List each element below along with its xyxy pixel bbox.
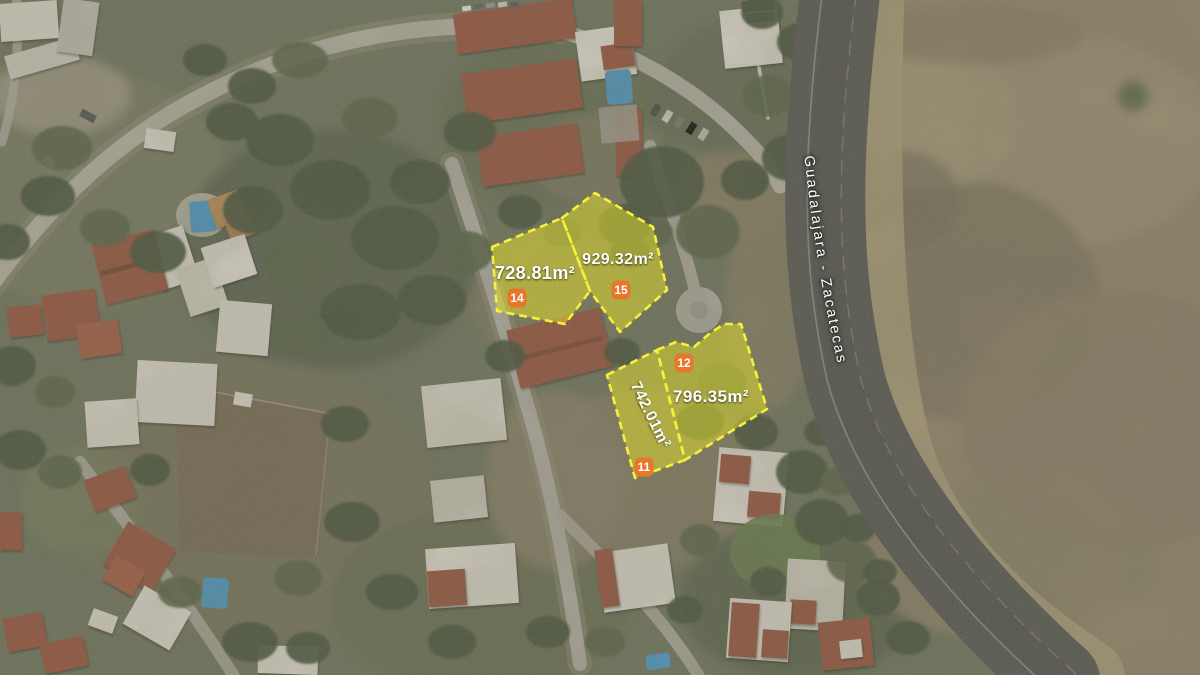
lot-15-area-label: 929.32m² [582, 251, 654, 268]
lot-14-number: 14 [510, 291, 524, 305]
lot-12-area-label: 796.35m² [673, 387, 749, 406]
lot-11-number: 11 [638, 460, 651, 474]
lot-15-number: 15 [614, 283, 628, 297]
satellite-map-view: 728.81m² 929.32m² 742.01m² 796.35m² 14 1… [0, 0, 1200, 675]
photo-grain [0, 0, 1200, 675]
satellite-map: 728.81m² 929.32m² 742.01m² 796.35m² 14 1… [0, 0, 1200, 675]
lot-12-number: 12 [677, 356, 691, 370]
lot-12-badge[interactable]: 12 [675, 354, 694, 373]
lot-14-area-label: 728.81m² [495, 263, 575, 283]
lot-14-badge[interactable]: 14 [508, 289, 527, 308]
lot-11-badge[interactable]: 11 [635, 458, 654, 477]
grain-coarse [0, 0, 1200, 675]
lot-15-badge[interactable]: 15 [612, 281, 631, 300]
